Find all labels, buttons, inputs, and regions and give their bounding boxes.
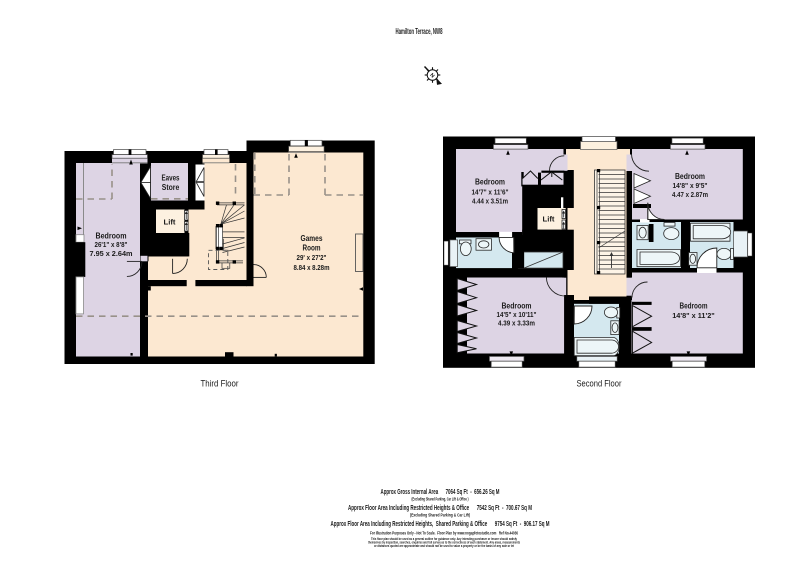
svg-text:Eaves: Eaves xyxy=(162,174,180,183)
svg-text:4.44 x 3.51m: 4.44 x 3.51m xyxy=(472,196,508,205)
svg-text:Lift: Lift xyxy=(164,218,177,227)
svg-text:Bedroom: Bedroom xyxy=(96,231,127,241)
svg-text:14'8" x 11'2": 14'8" x 11'2" xyxy=(672,311,715,320)
svg-text:(Excluding Shared Parking, Car: (Excluding Shared Parking, Car Lift & Of… xyxy=(412,497,469,502)
svg-text:4.47 x 2.87m: 4.47 x 2.87m xyxy=(672,190,708,199)
svg-text:Approx Floor Area Including Re: Approx Floor Area Including Restricted H… xyxy=(348,505,532,512)
svg-text:7.95 x 2.64m: 7.95 x 2.64m xyxy=(90,249,133,258)
svg-text:Hamilton Terrace, NW8: Hamilton Terrace, NW8 xyxy=(396,27,443,36)
svg-text:8.84 x 8.28m: 8.84 x 8.28m xyxy=(294,263,330,272)
svg-text:26'1" x 8'8": 26'1" x 8'8" xyxy=(95,240,128,249)
svg-text:Room: Room xyxy=(303,243,321,253)
svg-text:Lift: Lift xyxy=(543,217,556,224)
svg-text:Bedroom: Bedroom xyxy=(675,172,705,181)
svg-text:(Excluding Shared Parking & Ca: (Excluding Shared Parking & Car Lift) xyxy=(410,513,470,518)
svg-text:Games: Games xyxy=(301,233,323,243)
svg-text:4.39 x 3.33m: 4.39 x 3.33m xyxy=(498,319,535,328)
svg-text:Store: Store xyxy=(162,183,180,192)
svg-text:14'8" x 9'5": 14'8" x 9'5" xyxy=(673,181,708,190)
svg-text:Approx Floor Area Including Re: Approx Floor Area Including Restricted H… xyxy=(331,521,550,528)
svg-text:Third Floor: Third Floor xyxy=(201,379,239,390)
svg-text:or distances quoted are approx: or distances quoted are approximate and … xyxy=(374,544,515,548)
svg-text:14'7" x 11'6": 14'7" x 11'6" xyxy=(472,187,509,196)
svg-text:29' x 27'2": 29' x 27'2" xyxy=(297,253,327,262)
svg-text:Bedroom: Bedroom xyxy=(680,302,708,311)
svg-text:Bedroom: Bedroom xyxy=(475,178,505,187)
svg-text:Second Floor: Second Floor xyxy=(577,379,622,390)
svg-text:For Illustration Purposes Only: For Illustration Purposes Only - Not To … xyxy=(370,531,518,536)
svg-text:Approx Gross Internal Area: Approx Gross Internal Area 7064 Sq Ft - … xyxy=(381,489,500,496)
